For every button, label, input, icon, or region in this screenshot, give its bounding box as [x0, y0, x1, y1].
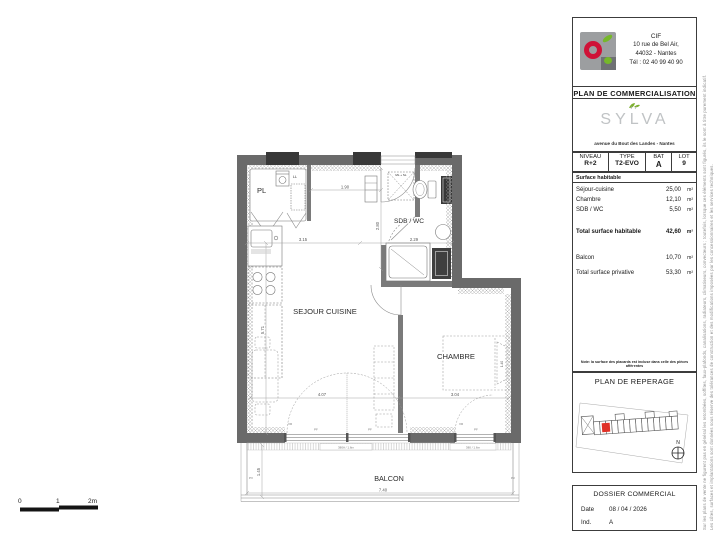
reperage-map: N [574, 389, 695, 471]
room-label-pl: PL [257, 186, 266, 195]
unit-info-table: NIVEAU R+2 TYPE T2-EVO BAT A LOT 9 [572, 152, 697, 172]
appliance-label-ll: LL [293, 175, 297, 179]
unit-col-niveau: NIVEAU R+2 [573, 153, 609, 171]
room-label-chambre: CHAMBRE [437, 352, 475, 361]
address-line-1: 10 rue de Bel Air, [617, 41, 695, 50]
company-address: CIF 10 rue de Bel Air, 44032 - Nantes Té… [617, 32, 695, 68]
dim-sejour-l: 4.07 [318, 392, 327, 397]
dim-sejour-h: 5.71 [260, 325, 265, 334]
unit-col-bat: BAT A [646, 153, 672, 171]
compass-n: N [676, 440, 680, 446]
ind-value: A [609, 519, 613, 526]
dim-lit: 1.40 [500, 361, 504, 367]
window-tags: VR PF PF VR PF PV PV 380A / 1.6m 380 / 1… [249, 422, 515, 480]
surface-row: Séjour-cuisine 25,00 m² [576, 187, 693, 195]
tag-pv-right: PV [511, 476, 515, 480]
brand-name: SYLVA [600, 111, 669, 128]
tag-pv-left: PV [249, 476, 253, 480]
tag-pf-3: PF [474, 428, 478, 432]
company-name: CIF [617, 32, 695, 41]
building-footprint [581, 410, 678, 436]
scale-0: 0 [18, 498, 22, 505]
window-chambre [454, 433, 496, 442]
reperage-box: PLAN DE REPERAGE N [572, 372, 697, 473]
surfaces-table: Surface habitable Séjour-cuisine 25,00 m… [572, 172, 697, 372]
surface-row: SDB / WC 5,50 m² [576, 207, 693, 215]
tag-vr-sejour: VR [288, 422, 293, 426]
leaf-icon [629, 103, 635, 108]
dim-sdb-l: 2.29 [410, 237, 419, 242]
legal-disclaimer-column-2: Les côtes, surfaces et implantations son… [709, 18, 716, 530]
brand-section: SYLVA avenue du Bout des Landes - Nantes [573, 99, 696, 151]
sylva-logo: SYLVA [573, 99, 696, 133]
brand-subtitle: avenue du Bout des Landes - Nantes [573, 141, 696, 146]
closet-pl [250, 169, 306, 235]
kitchen-fixtures [248, 226, 282, 378]
scale-bar: 0 1 2m [18, 498, 98, 512]
scale-2m: 2m [88, 498, 97, 505]
placards-note: Note: la surface des placards est inclus… [575, 360, 694, 368]
floor-plan-drawing: PL SDB / WC SEJOUR CUISINE CHAMBRE BALCO… [0, 0, 545, 540]
compass-icon: N [672, 440, 684, 459]
balcony-edge [241, 443, 519, 502]
dim-entree: 1.90 [341, 185, 350, 190]
ind-label: Ind. [581, 519, 591, 526]
cif-logo-icon [580, 32, 616, 70]
scale-1: 1 [56, 498, 60, 505]
room-label-sdb-wc: SDB / WC [394, 218, 424, 225]
tag-window-chambre: 380 / 1.6m [466, 446, 481, 450]
tag-pf-1: PF [314, 428, 318, 432]
tag-vr-chambre: VR [459, 422, 464, 426]
company-section: CIF 10 rue de Bel Air, 44032 - Nantes Té… [573, 18, 696, 86]
surface-row: Balcon 10,70 m² [576, 255, 693, 263]
unit-col-type: TYPE T2-EVO [609, 153, 647, 171]
dim-chambre-l: 3.04 [451, 392, 460, 397]
surface-row-total-habitable: Total surface habitable 42,60 m² [576, 229, 693, 237]
date-label: Date [581, 506, 594, 513]
tag-pf-2: PF [368, 428, 372, 432]
partitions [307, 165, 452, 433]
titleblock-header: CIF 10 rue de Bel Air, 44032 - Nantes Té… [572, 17, 697, 152]
plan-sheet: PL SDB / WC SEJOUR CUISINE CHAMBRE BALCO… [0, 0, 720, 540]
legal-disclaimer-column-1: Sur les plans de vente ne figurent pas e… [702, 18, 709, 530]
address-line-2: 44032 - Nantes [617, 50, 695, 59]
unit-col-lot: LOT 9 [672, 153, 696, 171]
bay-window-sejour [284, 433, 411, 442]
unit-location-marker [602, 423, 611, 433]
room-label-sejour: SEJOUR CUISINE [293, 307, 357, 316]
surface-row: Chambre 12,10 m² [576, 197, 693, 205]
sejour-furniture [252, 337, 394, 427]
leaf-icon [634, 105, 640, 108]
surfaces-section-title: Surface habitable [573, 173, 696, 183]
dim-cuisine: 3.15 [299, 237, 308, 242]
appliance-label-ml-sl: ML + SL [395, 173, 406, 177]
dim-balcon-l: 7.40 [379, 488, 388, 493]
dossier-title: DOSSIER COMMERCIAL [573, 486, 696, 498]
room-label-balcon: BALCON [374, 474, 404, 483]
dossier-box: DOSSIER COMMERCIAL Date 08 / 04 / 2026 I… [572, 485, 697, 531]
dim-balcon-p: 1.45 [256, 467, 261, 476]
surface-row-total-privative: Total surface privative 53,30 m² [576, 270, 693, 278]
reperage-title: PLAN DE REPERAGE [573, 373, 696, 386]
address-line-3: Tél : 02 40 99 40 90 [617, 59, 695, 68]
tag-window-sejour: 380A / 1.6m [338, 446, 355, 450]
doc-title: PLAN DE COMMERCIALISATION [573, 86, 696, 99]
dim-sdb-h: 2.80 [375, 221, 380, 230]
date-value: 08 / 04 / 2026 [609, 506, 647, 513]
